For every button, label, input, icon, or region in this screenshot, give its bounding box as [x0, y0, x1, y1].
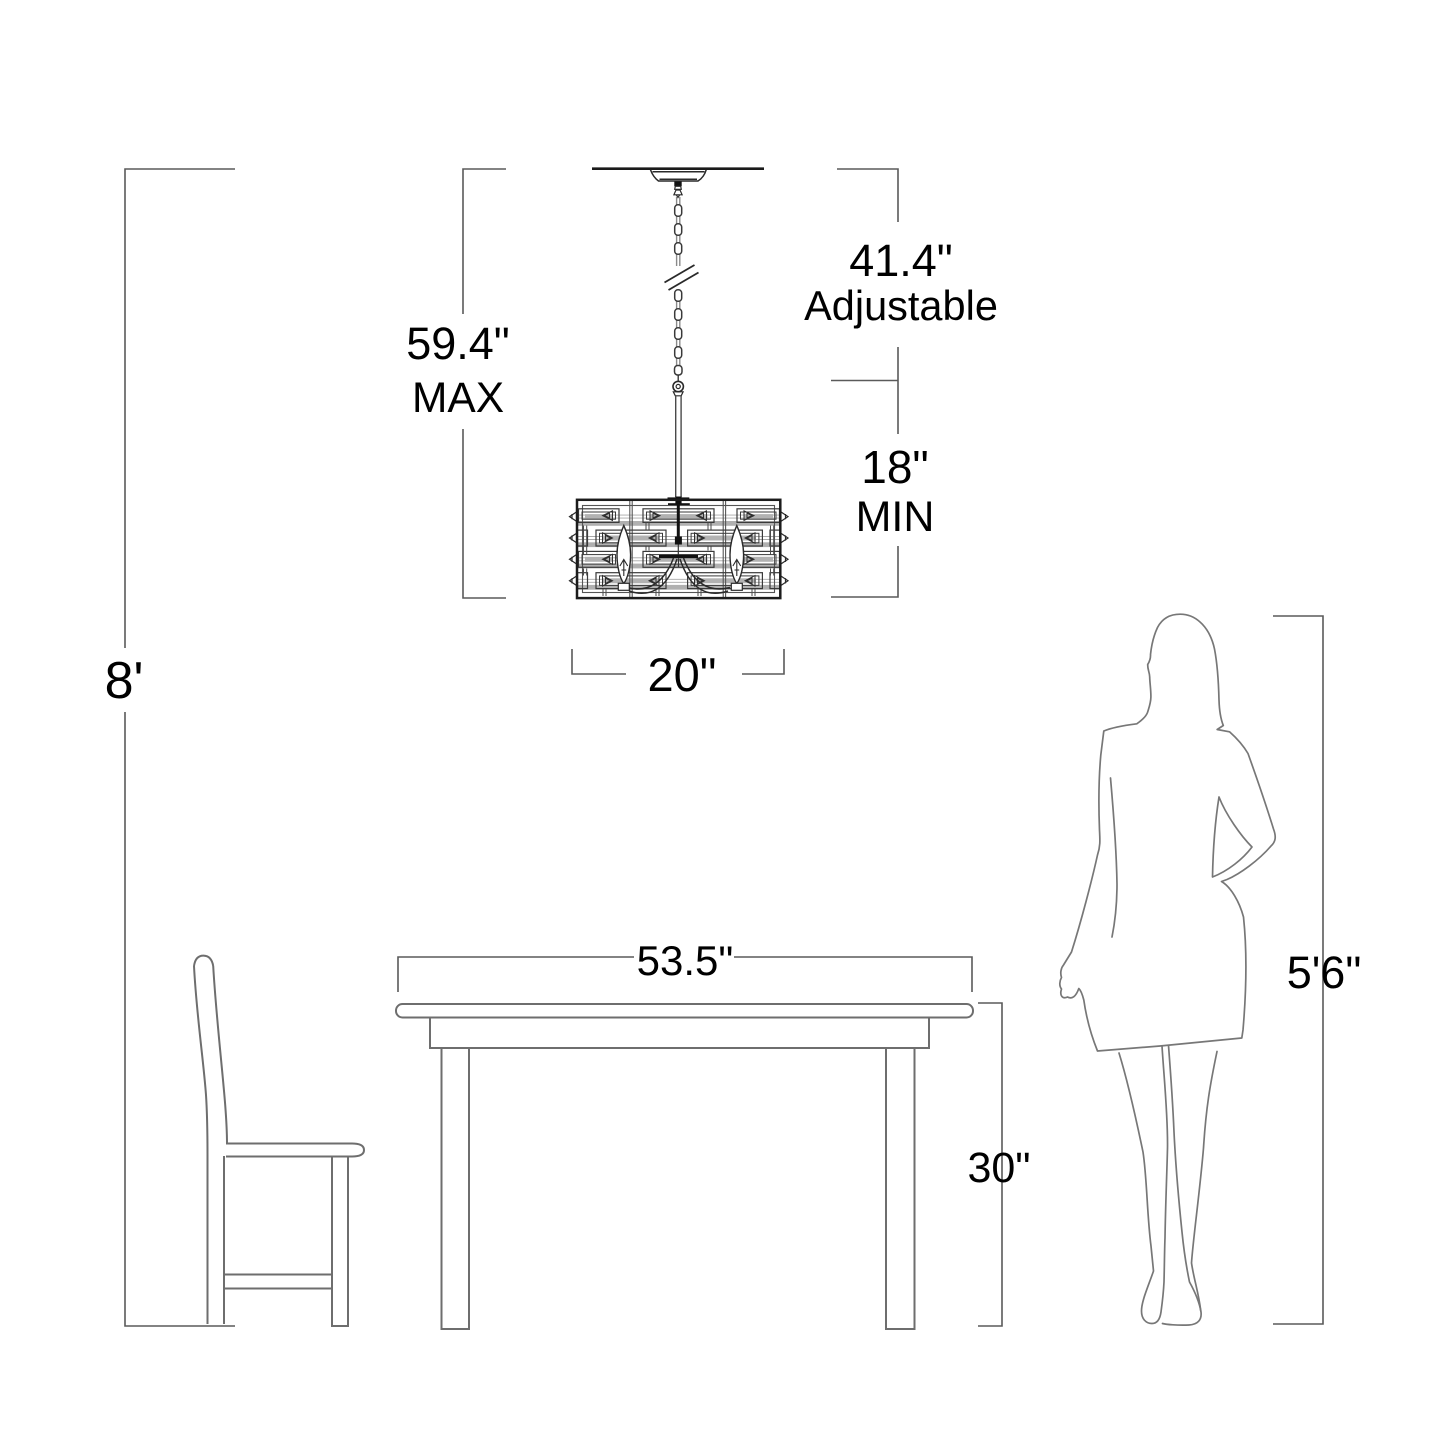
svg-text:20": 20"	[648, 648, 717, 701]
svg-text:MIN: MIN	[856, 493, 935, 541]
svg-text:30": 30"	[967, 1144, 1030, 1192]
svg-text:53.5": 53.5"	[637, 937, 734, 984]
svg-text:18": 18"	[861, 441, 929, 493]
svg-text:MAX: MAX	[412, 375, 504, 422]
svg-text:59.4": 59.4"	[406, 318, 510, 369]
svg-text:41.4": 41.4"	[849, 235, 953, 286]
svg-text:8': 8'	[105, 652, 144, 710]
svg-text:Adjustable: Adjustable	[804, 282, 998, 329]
svg-text:5'6": 5'6"	[1287, 947, 1362, 998]
